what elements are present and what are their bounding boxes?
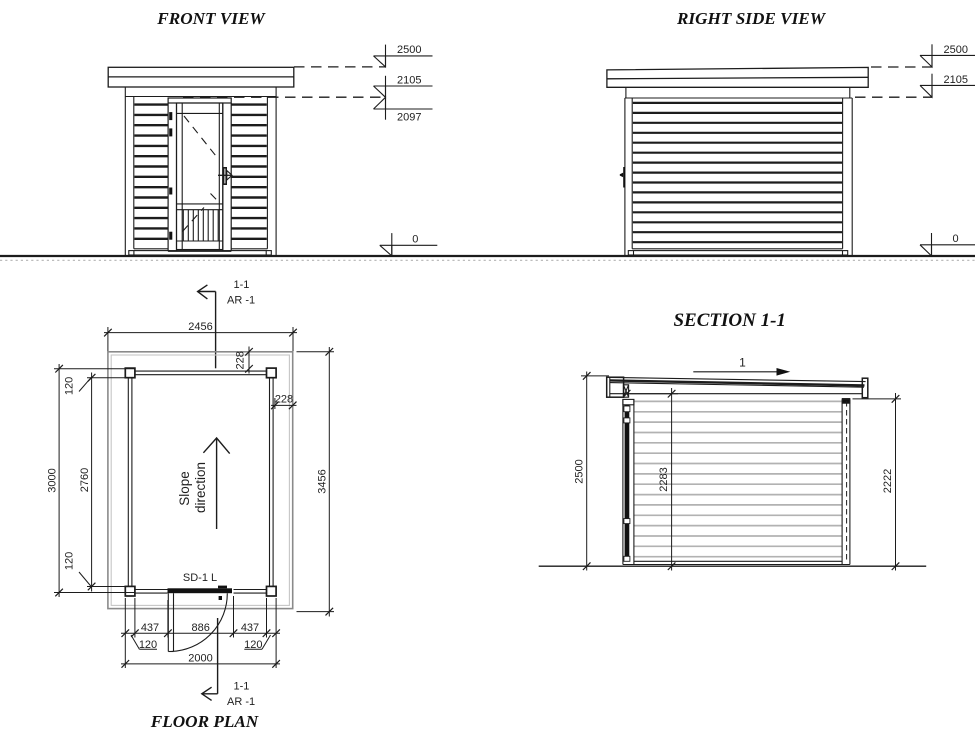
svg-text:120: 120 [64, 377, 76, 395]
svg-text:0: 0 [412, 233, 418, 245]
svg-text:2500: 2500 [573, 459, 585, 483]
svg-text:120: 120 [244, 639, 262, 651]
svg-text:228: 228 [235, 351, 247, 369]
svg-text:direction: direction [193, 462, 208, 513]
svg-text:120: 120 [64, 552, 76, 570]
svg-text:FLOOR PLAN: FLOOR PLAN [150, 712, 259, 731]
svg-text:Slope: Slope [177, 471, 192, 506]
svg-text:2500: 2500 [397, 44, 421, 56]
svg-text:FRONT VIEW: FRONT VIEW [156, 9, 266, 28]
svg-text:2283: 2283 [658, 467, 670, 491]
svg-text:120: 120 [139, 639, 157, 651]
svg-text:2097: 2097 [397, 111, 421, 123]
svg-text:1-1: 1-1 [234, 279, 250, 291]
svg-text:3000: 3000 [47, 468, 59, 492]
svg-text:2105: 2105 [397, 75, 421, 87]
svg-text:437: 437 [141, 622, 159, 634]
svg-text:RIGHT SIDE VIEW: RIGHT SIDE VIEW [676, 9, 827, 28]
svg-text:2456: 2456 [188, 321, 212, 333]
svg-text:SD-1 L: SD-1 L [183, 572, 217, 584]
svg-text:2000: 2000 [188, 652, 212, 664]
svg-text:3456: 3456 [317, 469, 329, 493]
svg-text:2760: 2760 [79, 468, 91, 492]
svg-text:SECTION 1-1: SECTION 1-1 [673, 310, 785, 331]
svg-text:437: 437 [241, 622, 259, 634]
svg-text:AR -1: AR -1 [227, 696, 255, 708]
svg-text:AR -1: AR -1 [227, 294, 255, 306]
svg-text:2222: 2222 [882, 469, 894, 493]
svg-text:1-1: 1-1 [234, 681, 250, 693]
svg-text:2105: 2105 [944, 74, 968, 86]
svg-text:1: 1 [739, 356, 746, 370]
svg-text:886: 886 [192, 622, 210, 634]
svg-text:2500: 2500 [944, 44, 968, 56]
svg-text:228: 228 [275, 394, 293, 406]
svg-text:0: 0 [953, 233, 959, 245]
